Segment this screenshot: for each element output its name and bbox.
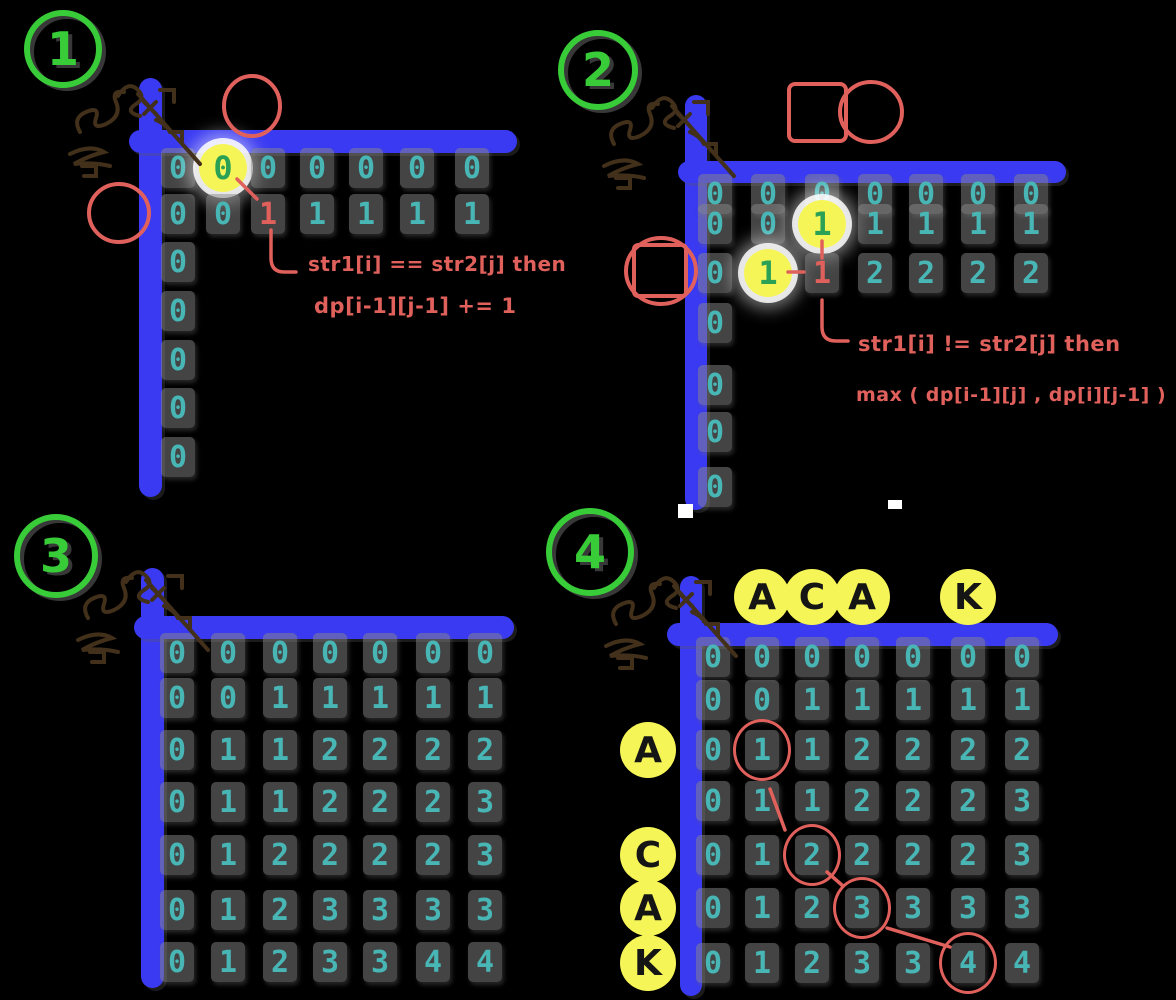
- step-badge-2: 2: [558, 30, 638, 110]
- red-circle-column-marker: [224, 76, 280, 136]
- step-number: 1: [47, 22, 79, 76]
- step-badge-4: 4: [546, 508, 634, 596]
- red-elbow-connector: [822, 300, 848, 341]
- step-badge-1: 1: [24, 10, 102, 88]
- traceback-arrow-2-to-3: [827, 872, 843, 886]
- red-elbow-connector: [271, 230, 296, 272]
- eraser-mark: [888, 500, 902, 509]
- red-square-row-marker: [634, 245, 686, 296]
- eraser-mark: [678, 504, 693, 518]
- corner-scribble: [70, 86, 200, 176]
- red-circle-row-marker: [89, 184, 149, 242]
- traceback-arrow-2-to-1: [770, 789, 785, 830]
- annotations-overlay: [0, 0, 1176, 1000]
- corner-scribble: [604, 98, 734, 188]
- red-square-column-marker: [789, 84, 846, 141]
- step-badge-3: 3: [14, 514, 98, 598]
- step-number: 2: [582, 43, 614, 97]
- traceback-arrow-4-to-3: [887, 928, 950, 947]
- corner-scribble: [606, 578, 736, 668]
- note-mismatch-rule: str1[i] != str2[j] then: [858, 332, 1121, 356]
- whiteboard-canvas: 1 0000000001111100000 str1[i] == str2[j]…: [0, 0, 1176, 1000]
- note-max-formula: max ( dp[i-1][j] , dp[i][j-1] ): [856, 384, 1166, 406]
- step-number: 4: [574, 525, 606, 579]
- note-match-update: dp[i-1][j-1] += 1: [314, 294, 516, 318]
- red-arrow-diagonal: [237, 179, 257, 199]
- note-match-rule: str1[i] == str2[j] then: [308, 252, 566, 276]
- corner-scribble: [78, 572, 208, 662]
- step-number: 3: [40, 529, 72, 583]
- red-circle-column-marker: [840, 82, 902, 142]
